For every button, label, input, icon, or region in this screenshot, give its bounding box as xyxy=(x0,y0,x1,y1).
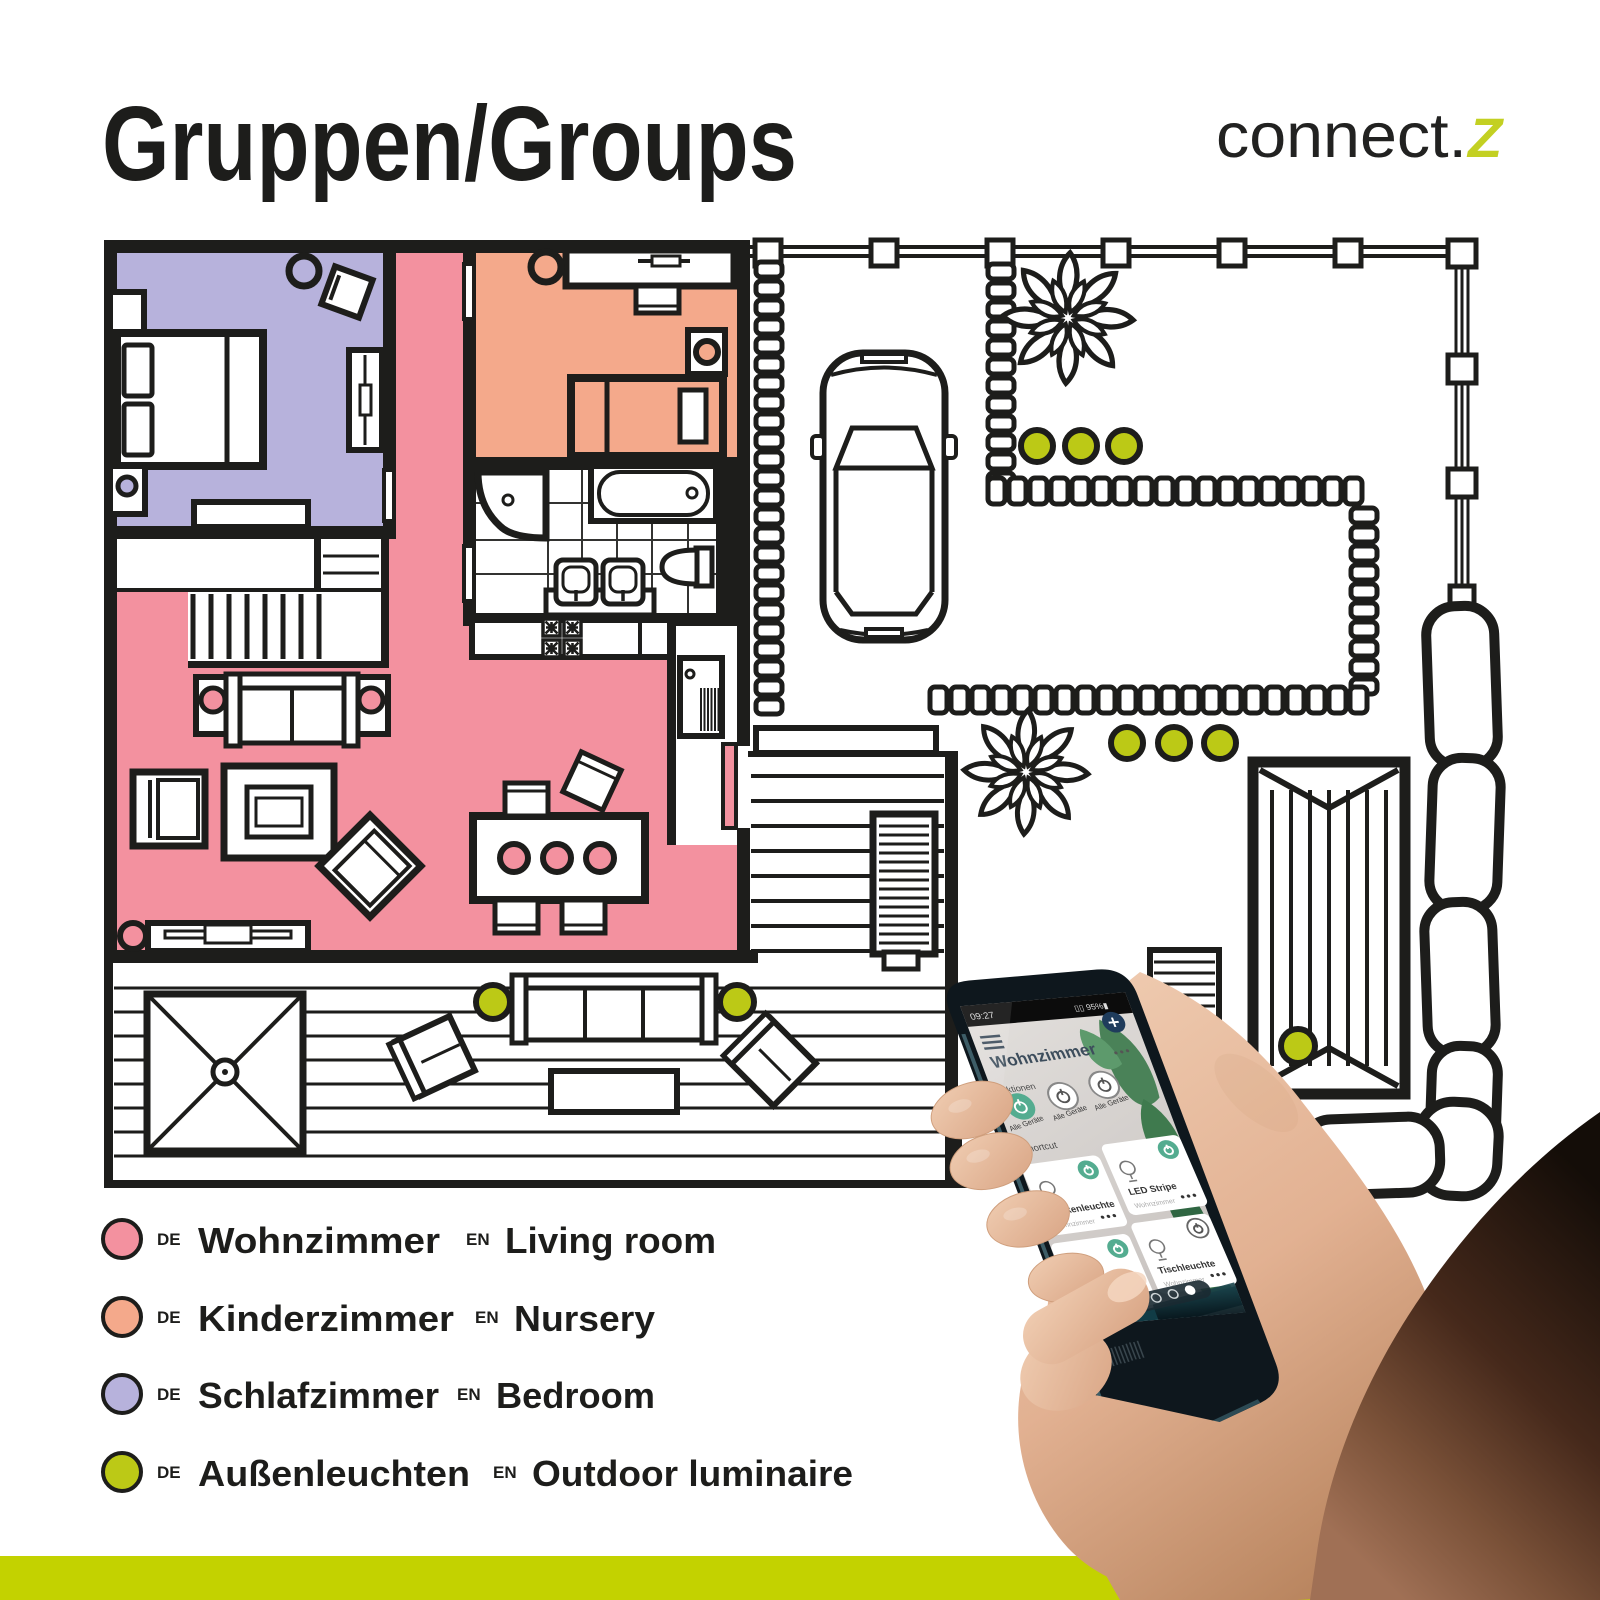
svg-text:Outdoor luminaire: Outdoor luminaire xyxy=(532,1453,853,1494)
svg-text:Wohnzimmer: Wohnzimmer xyxy=(198,1220,440,1261)
svg-text:EN: EN xyxy=(493,1463,517,1482)
svg-text:Bedroom: Bedroom xyxy=(496,1375,655,1416)
svg-text:EN: EN xyxy=(466,1230,490,1249)
svg-text:Außenleuchten: Außenleuchten xyxy=(198,1453,470,1494)
svg-text:EN: EN xyxy=(475,1308,499,1327)
svg-text:DE: DE xyxy=(157,1385,181,1404)
svg-text:DE: DE xyxy=(157,1463,181,1482)
svg-text:DE: DE xyxy=(157,1308,181,1327)
svg-text:Nursery: Nursery xyxy=(514,1298,655,1339)
svg-text:Kinderzimmer: Kinderzimmer xyxy=(198,1298,454,1339)
svg-text:DE: DE xyxy=(157,1230,181,1249)
svg-text:Living room: Living room xyxy=(505,1220,716,1261)
svg-text:Z: Z xyxy=(1466,106,1504,169)
svg-text:Schlafzimmer: Schlafzimmer xyxy=(198,1375,439,1416)
svg-text:EN: EN xyxy=(457,1385,481,1404)
svg-text:Gruppen/Groups: Gruppen/Groups xyxy=(102,85,797,203)
svg-text:connect.: connect. xyxy=(1216,101,1467,171)
